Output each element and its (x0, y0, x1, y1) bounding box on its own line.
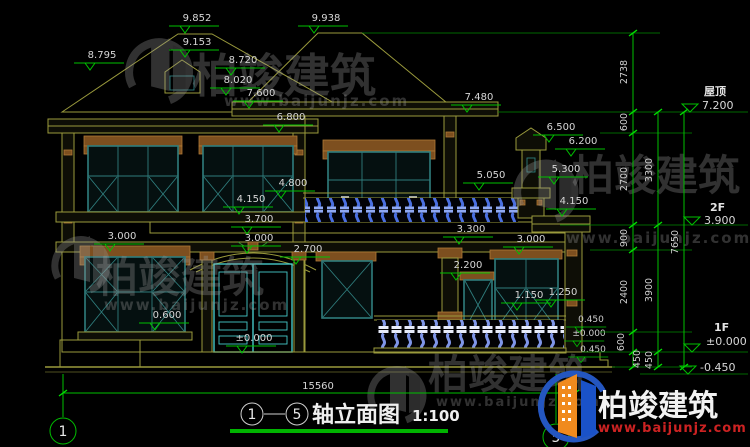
elevation-mark: 8.795 (88, 50, 117, 61)
elevation-mark: 0.600 (153, 310, 182, 321)
elevation-mark: 6.200 (569, 136, 598, 147)
title-scale: 1:100 (412, 407, 460, 425)
elevation-mark: 8.720 (229, 55, 258, 66)
title-axis-right: 5 (293, 407, 302, 423)
level-label: 2F (710, 201, 725, 214)
elevation-mark: 1.250 (549, 287, 578, 298)
elevation-mark: 0.450 (578, 315, 604, 325)
elevation-mark: ±0.000 (572, 329, 606, 339)
logo-url-text: www.baijunjz.com (598, 421, 747, 436)
dimension-chains: 2738 600 2700 900 2400 600 450 3300 3900… (616, 30, 688, 370)
elevation-mark: 5.050 (477, 170, 506, 181)
elevation-mark: 3.000 (517, 234, 546, 245)
title-axis-left: 1 (248, 407, 257, 423)
logo-brand-text: 柏竣建筑 (598, 389, 718, 424)
level-value: 3.900 (704, 214, 736, 227)
logo-building-icon (558, 374, 577, 438)
title-text: 轴立面图 (312, 402, 400, 428)
watermark-brand: 柏竣建筑 (572, 151, 740, 200)
elevation-mark: 9.852 (183, 13, 212, 24)
chain-dim: 600 (619, 113, 630, 131)
drawing-title: 1 5 轴立面图 1:100 (230, 402, 460, 433)
elevation-mark: 1.150 (515, 290, 544, 301)
elevation-mark: 4.800 (279, 178, 308, 189)
elevation-mark: 3.000 (245, 233, 274, 244)
elevation-mark: 5.300 (552, 164, 581, 175)
axis-bubble-left: 1 (59, 424, 68, 440)
elevation-mark: 2.200 (454, 260, 483, 271)
elevation-mark: 2.700 (294, 244, 323, 255)
porch-column (438, 248, 462, 320)
chain-dim: 900 (619, 229, 630, 247)
elevation-mark: 4.150 (560, 196, 589, 207)
stone-base (60, 340, 140, 367)
chain-dim: 3900 (644, 278, 655, 302)
window-1f-center (316, 252, 376, 318)
watermark-brand: 柏竣建筑 (96, 253, 264, 302)
chain-dim: 3300 (644, 158, 655, 182)
chain-dim: 2700 (619, 167, 630, 191)
level-label: 1F (714, 321, 729, 334)
watermark-url: www.baijunjz.com (104, 296, 289, 314)
elevation-mark: ±0.000 (235, 333, 272, 344)
elevation-drawing: 柏竣建筑 www.baijunjz.com 柏竣建筑 www.baijunjz.… (0, 0, 750, 447)
elevation-mark: 3.700 (245, 214, 274, 225)
chain-dim: 450 (632, 350, 643, 368)
elevation-mark: 3.000 (108, 231, 137, 242)
elevation-mark: 6.800 (277, 112, 306, 123)
elevation-mark: 6.500 (547, 122, 576, 133)
elevation-mark: 8.020 (224, 75, 253, 86)
title-underline (230, 429, 448, 433)
chain-dim: 7650 (670, 230, 681, 254)
brand-logo: 柏竣建筑 www.baijunjz.com (541, 373, 747, 439)
elevation-mark: 3.300 (457, 224, 486, 235)
window-2f-left (84, 136, 182, 212)
level-value: -0.450 (700, 361, 735, 374)
cad-elevation-canvas: 柏竣建筑 www.baijunjz.com 柏竣建筑 www.baijunjz.… (0, 0, 750, 447)
level-value: 7.200 (702, 99, 734, 112)
elevation-mark: 9.153 (183, 37, 212, 48)
chain-dim: 450 (644, 351, 655, 369)
level-label: 屋顶 (704, 85, 726, 98)
chain-dim: 2400 (619, 280, 630, 304)
chain-dim: 600 (616, 333, 627, 351)
chain-dim: 2738 (619, 60, 630, 84)
total-width-text: 15560 (302, 381, 334, 392)
elevation-mark: 7.480 (465, 92, 494, 103)
elevation-mark: 4.150 (237, 194, 266, 205)
porch-railing-1f (374, 316, 566, 353)
elevation-mark: 9.938 (312, 13, 341, 24)
elevation-mark: 0.450 (580, 345, 606, 355)
elevation-mark: 7.600 (247, 88, 276, 99)
level-value: ±0.000 (706, 335, 747, 348)
